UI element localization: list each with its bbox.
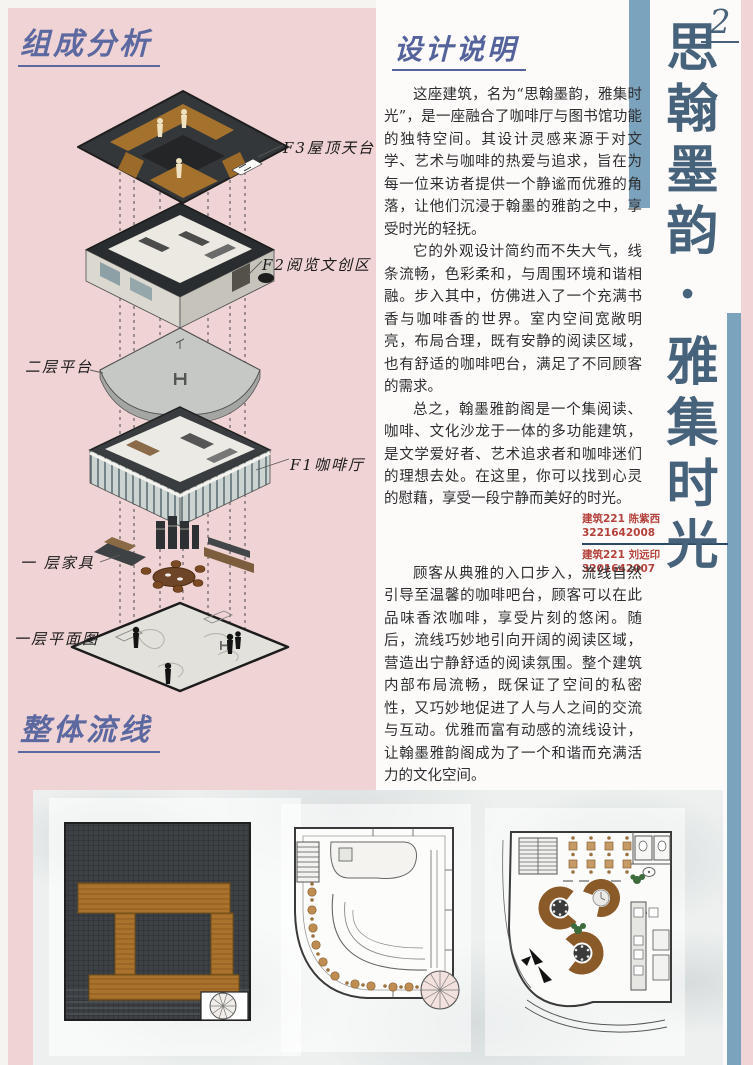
poster-vertical-title: 思翰墨韵·雅集时光 bbox=[651, 20, 723, 640]
circulation-heading: 整体流线 bbox=[18, 716, 160, 753]
right-edge-pink-strip bbox=[741, 0, 753, 1065]
label-f1-coffee-shop: F1咖啡厅 bbox=[290, 458, 365, 473]
axon-second-floor-platform bbox=[90, 328, 260, 423]
design-paragraph-2: 它的外观设计简约而不失大气，线条流畅，色彩柔和，与周围环境和谐相融。步入其中，仿… bbox=[384, 241, 642, 398]
design-notes-text: 这座建筑，名为“思翰墨韵，雅集时光”，是一座融合了咖啡厅与图书馆功能的独特空间。… bbox=[384, 84, 642, 511]
roof-plan bbox=[49, 798, 301, 1056]
design-notes-heading: 设计说明 bbox=[392, 36, 526, 71]
label-f2-reading-area: F2阅览文创区 bbox=[262, 258, 371, 273]
first-floor-plan bbox=[485, 808, 685, 1056]
label-second-floor-platform: 二层平台 bbox=[25, 360, 93, 375]
label-first-floor-plan: 一层平面图 bbox=[14, 632, 99, 647]
axon-f2-reading-area bbox=[86, 203, 274, 328]
label-first-floor-furniture: 一 层家具 bbox=[20, 556, 95, 571]
presentation-board: 组成分析 设计说明 整体流线 bbox=[0, 0, 753, 1065]
circulation-floor-plans bbox=[33, 790, 723, 1065]
axon-first-floor-plan bbox=[72, 603, 288, 691]
accent-bar-bottom bbox=[727, 313, 741, 1065]
label-f3-roof-terrace: F3屋顶天台 bbox=[283, 141, 375, 156]
circulation-paragraph: 顾客从典雅的入口步入，流线自然引导至温馨的咖啡吧台，顾客可以在此品味香浓咖啡，享… bbox=[384, 563, 642, 788]
design-paragraph-1: 这座建筑，名为“思翰墨韵，雅集时光”，是一座融合了咖啡厅与图书馆功能的独特空间。… bbox=[384, 84, 642, 241]
second-floor-plan bbox=[281, 804, 471, 1052]
composition-heading: 组成分析 bbox=[18, 30, 160, 67]
exploded-axonometric-diagram bbox=[8, 85, 376, 697]
design-paragraph-3: 总之，翰墨雅韵阁是一个集阅读、咖啡、文化沙龙于一体的多功能建筑，是文学爱好者、艺… bbox=[384, 399, 642, 511]
axon-f3-roof-terrace bbox=[78, 91, 288, 203]
circulation-text: 顾客从典雅的入口步入，流线自然引导至温馨的咖啡吧台，顾客可以在此品味香浓咖啡，享… bbox=[384, 563, 642, 788]
